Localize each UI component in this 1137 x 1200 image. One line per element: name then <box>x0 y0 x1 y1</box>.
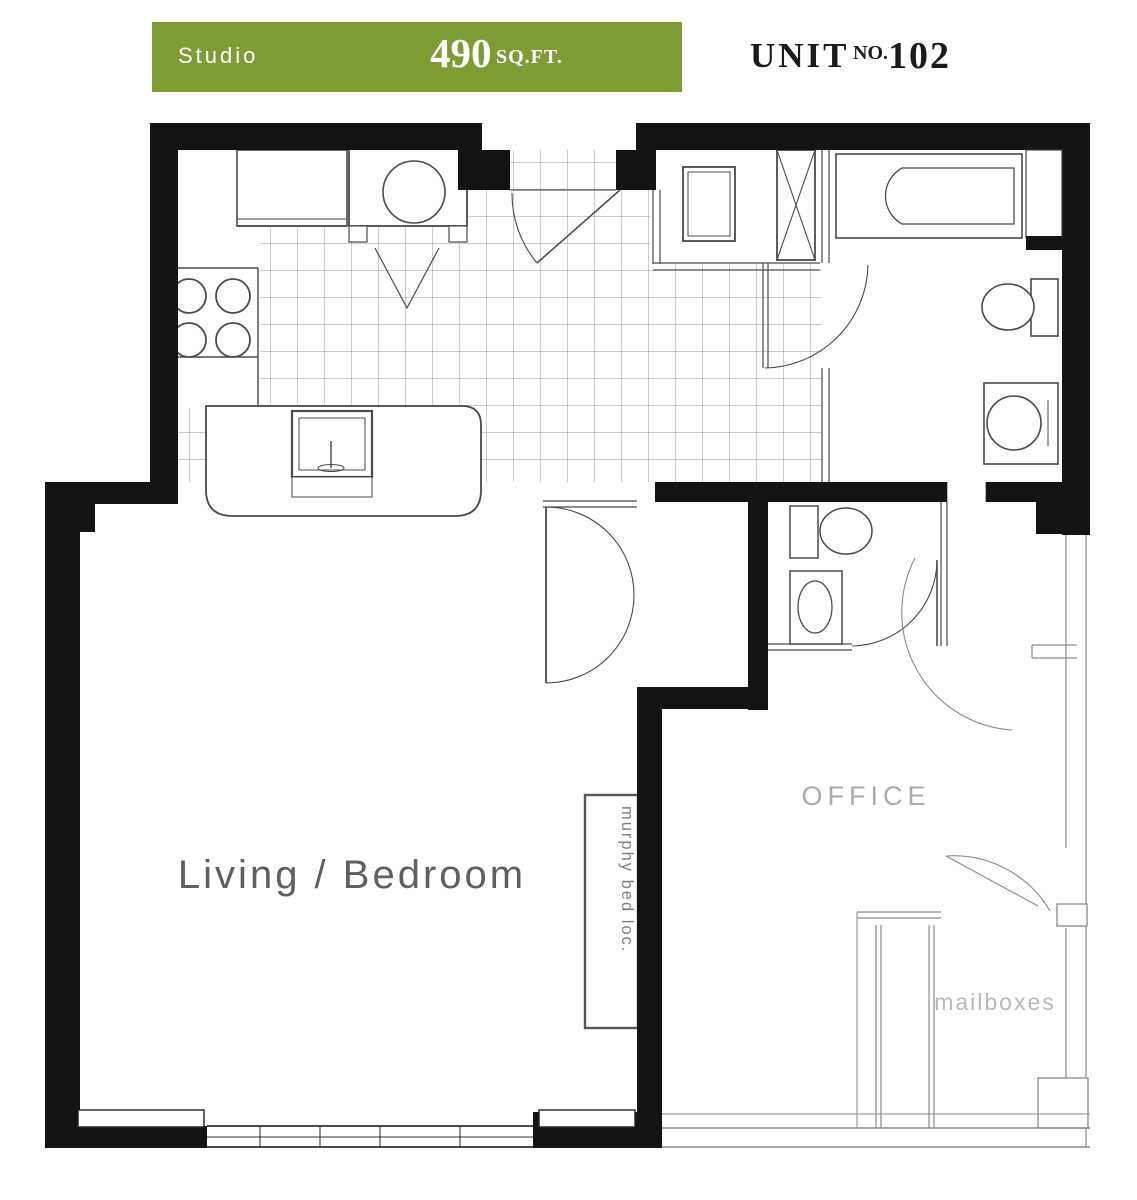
french-door-arc-bottom <box>546 595 634 683</box>
corridor-entry-door <box>946 856 1087 926</box>
wall-bottom-left <box>45 1126 207 1148</box>
fridge-counter <box>237 150 347 226</box>
bathtub <box>836 154 1022 238</box>
murphy-bed-box: murphy bed loc. <box>585 795 638 1028</box>
floorplan-svg: Studio 490 SQ.FT. UNIT NO. 102 <box>0 0 1137 1200</box>
sink-main <box>984 383 1058 464</box>
french-door-arc-top <box>546 507 634 595</box>
sink-powder <box>790 571 842 644</box>
unit-no-label: NO. <box>853 42 888 64</box>
unit-word: UNIT <box>750 36 850 75</box>
peninsula-sink <box>292 411 372 477</box>
toilet-powder <box>790 506 872 558</box>
unit-type-label: Studio <box>178 43 258 68</box>
unit-number: 102 <box>888 35 951 77</box>
wall-left-upper <box>150 123 178 490</box>
mechanical-chase-x-box <box>777 150 815 260</box>
powder-room <box>768 502 947 650</box>
label-mailboxes: mailboxes <box>934 989 1056 1015</box>
wall-right-upper <box>1062 123 1090 535</box>
powder-door-arc <box>852 560 937 646</box>
corridor-bottom-wall <box>659 1114 1090 1147</box>
french-doors <box>543 501 637 683</box>
washer-dryer-box <box>683 167 735 241</box>
murphy-bed-label: murphy bed loc. <box>618 806 636 953</box>
floorplan-page: Studio 490 SQ.FT. UNIT NO. 102 <box>0 0 1137 1200</box>
window-sill-left <box>78 1110 204 1127</box>
mailbox-nook <box>857 912 941 1128</box>
kitchen-peninsula <box>206 406 481 516</box>
wall-office-top-left <box>655 482 947 502</box>
wall-hall-right <box>748 482 768 710</box>
wall-left-lower <box>45 482 80 1146</box>
powder-door <box>852 560 937 646</box>
toilet-main <box>982 279 1058 336</box>
office-corridor <box>857 482 1088 1147</box>
area-unit: SQ.FT. <box>496 46 563 68</box>
window-sill-right <box>539 1110 635 1127</box>
bath-niche-bottom <box>1026 236 1062 250</box>
wall-living-right <box>637 687 662 1148</box>
corner-nook <box>1038 1078 1088 1128</box>
wall-top-left <box>150 123 482 150</box>
office-door-arc <box>902 558 1012 730</box>
label-living-bedroom: Living / Bedroom <box>178 853 526 897</box>
label-office: OFFICE <box>802 781 931 811</box>
wall-top-right <box>636 123 1090 150</box>
header-bar: Studio 490 SQ.FT. UNIT NO. 102 <box>152 22 951 92</box>
wall-entry-jamb-left <box>458 150 510 190</box>
wall-entry-jamb-right <box>616 150 656 190</box>
bath-niche <box>1026 150 1062 238</box>
area-value: 490 <box>430 30 492 76</box>
